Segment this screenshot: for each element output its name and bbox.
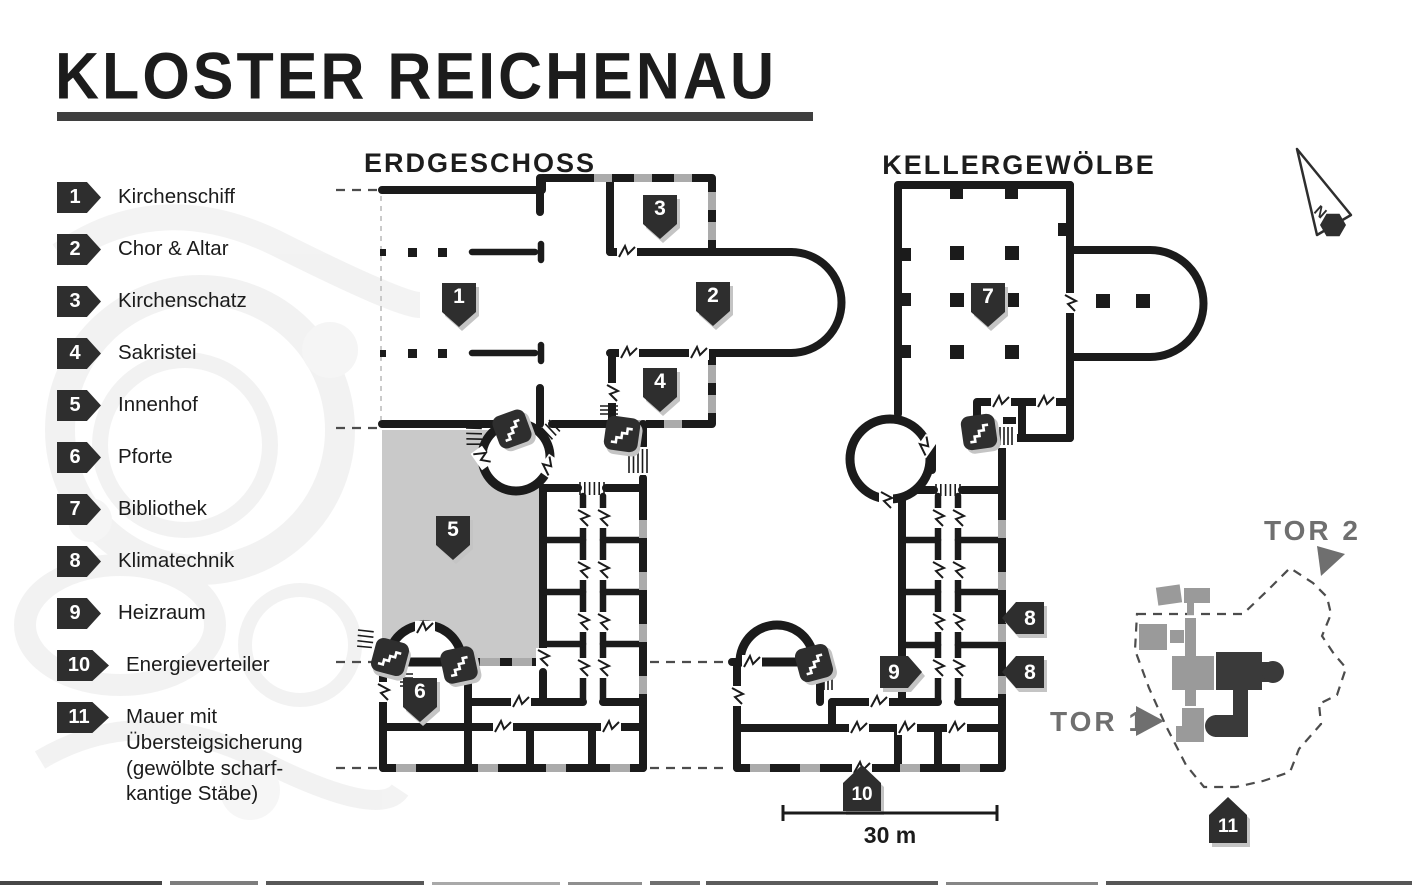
page-title: KLOSTER REICHENAU — [55, 38, 777, 114]
svg-text:8: 8 — [1024, 661, 1036, 684]
stair-tower — [850, 419, 930, 499]
stairs-icon — [960, 412, 1002, 455]
legend-item-label: Mauer mit Übersteigsicherung (gewölbte s… — [126, 702, 322, 807]
legend-badge-icon: 10 — [57, 650, 109, 681]
legend-item-label: Chor & Altar — [118, 234, 314, 262]
legend-item-label: Kirchenschatz — [118, 286, 314, 314]
map-marker-2: 2 — [696, 282, 733, 330]
stairs-icon — [602, 415, 644, 458]
legend-item-8: 8 Klimatechnik — [57, 546, 327, 577]
legend-item-3: 3 Kirchenschatz — [57, 286, 327, 317]
legend-badge-icon: 3 — [57, 286, 101, 317]
legend-item-2: 2 Chor & Altar — [57, 234, 327, 265]
svg-text:1: 1 — [453, 285, 465, 308]
legend-badge-icon: 5 — [57, 390, 101, 421]
ground-floor-plan: 1 2 3 4 5 6 — [352, 178, 842, 768]
legend-badge-icon: 2 — [57, 234, 101, 265]
svg-text:10: 10 — [851, 784, 872, 805]
ground-floor-label: ERDGESCHOSS — [364, 148, 596, 179]
legend-badge-icon: 4 — [57, 338, 101, 369]
map-marker-6: 6 — [403, 678, 440, 726]
map-marker-8a: 8 — [1002, 602, 1047, 638]
legend-item-label: Energieverteiler — [126, 650, 322, 678]
cellar-floor-label: KELLERGEWÖLBE — [882, 150, 1156, 181]
map-marker-3: 3 — [643, 195, 680, 243]
legend-item-11: 11 Mauer mit Übersteigsicherung (gewölbt… — [57, 702, 327, 807]
map-marker-11: 11 — [1209, 797, 1250, 847]
svg-text:11: 11 — [1218, 816, 1239, 837]
svg-text:5: 5 — [447, 518, 459, 541]
legend-badge-icon: 8 — [57, 546, 101, 577]
legend-badge-icon: 9 — [57, 598, 101, 629]
minimap-buildings-dark — [1205, 652, 1284, 737]
svg-text:9: 9 — [888, 661, 900, 684]
gate-1-arrow-icon — [1136, 706, 1164, 736]
scale-bar: 30 m — [783, 805, 997, 848]
map-marker-4: 4 — [643, 368, 680, 416]
legend-badge-icon: 7 — [57, 494, 101, 525]
poster-map-kloster-reichenau: KLOSTER REICHENAU ERDGESCHOSS KELLERGEWÖ… — [0, 0, 1412, 886]
svg-text:8: 8 — [1024, 607, 1036, 630]
legend-item-1: 1 Kirchenschiff — [57, 182, 327, 213]
gate-2-arrow-icon — [1317, 546, 1345, 576]
map-marker-7: 7 — [971, 283, 1008, 331]
legend-item-label: Klimatechnik — [118, 546, 314, 574]
legend-item-label: Pforte — [118, 442, 314, 470]
vault-pillars — [899, 186, 1150, 430]
legend-item-label: Kirchenschiff — [118, 182, 314, 210]
legend-badge-icon: 11 — [57, 702, 109, 733]
legend-item-10: 10 Energieverteiler — [57, 650, 327, 681]
map-marker-9: 9 — [880, 656, 925, 692]
map-marker-1: 1 — [442, 283, 479, 331]
gate-2-label: TOR 2 — [1264, 515, 1361, 546]
legend-item-9: 9 Heizraum — [57, 598, 327, 629]
legend: 1 Kirchenschiff 2 Chor & Altar 3 Kirchen… — [57, 182, 327, 828]
gate-1-label: TOR 1 — [1050, 706, 1147, 737]
map-marker-10: 10 — [843, 765, 884, 815]
svg-text:6: 6 — [414, 680, 426, 703]
title-underline — [57, 112, 813, 121]
legend-item-4: 4 Sakristei — [57, 338, 327, 369]
legend-item-6: 6 Pforte — [57, 442, 327, 473]
bottom-edge-strip — [0, 881, 1412, 885]
scale-bar-label: 30 m — [864, 822, 916, 848]
legend-badge-icon: 6 — [57, 442, 101, 473]
svg-text:3: 3 — [654, 197, 666, 220]
legend-item-label: Heizraum — [118, 598, 314, 626]
legend-item-label: Innenhof — [118, 390, 314, 418]
legend-badge-icon: 1 — [57, 182, 101, 213]
svg-text:2: 2 — [707, 284, 719, 307]
legend-item-5: 5 Innenhof — [57, 390, 327, 421]
site-overview-minimap: TOR 2 TOR 1 11 — [1050, 515, 1361, 847]
legend-item-7: 7 Bibliothek — [57, 494, 327, 525]
legend-item-label: Bibliothek — [118, 494, 314, 522]
legend-item-label: Sakristei — [118, 338, 314, 366]
map-marker-8b: 8 — [1002, 656, 1047, 692]
svg-text:4: 4 — [654, 370, 666, 393]
svg-text:7: 7 — [982, 285, 994, 308]
north-compass-icon: N — [1297, 149, 1351, 236]
